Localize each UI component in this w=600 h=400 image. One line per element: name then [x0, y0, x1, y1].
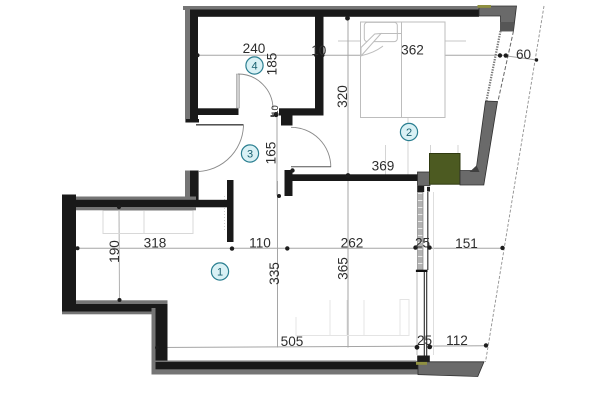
- svg-text:262: 262: [341, 235, 364, 250]
- svg-text:2: 2: [406, 127, 412, 139]
- svg-text:112: 112: [446, 333, 468, 348]
- svg-text:240: 240: [243, 41, 266, 56]
- svg-text:165: 165: [264, 142, 279, 165]
- svg-text:60: 60: [516, 47, 532, 62]
- svg-text:1: 1: [217, 266, 223, 278]
- svg-text:10: 10: [311, 43, 327, 58]
- svg-text:185: 185: [265, 53, 280, 76]
- svg-text:4: 4: [251, 60, 257, 72]
- svg-text:10: 10: [270, 105, 281, 116]
- svg-text:365: 365: [336, 257, 351, 280]
- svg-text:25: 25: [417, 333, 432, 348]
- svg-text:25: 25: [415, 235, 430, 250]
- svg-text:320: 320: [335, 85, 350, 108]
- svg-text:318: 318: [144, 235, 167, 250]
- svg-text:505: 505: [281, 334, 304, 349]
- svg-text:3: 3: [247, 148, 253, 160]
- svg-text:369: 369: [372, 159, 395, 174]
- svg-text:190: 190: [107, 240, 122, 263]
- svg-text:151: 151: [455, 236, 478, 251]
- svg-text:110: 110: [249, 235, 271, 250]
- svg-text:335: 335: [267, 262, 282, 285]
- svg-text:362: 362: [401, 43, 424, 58]
